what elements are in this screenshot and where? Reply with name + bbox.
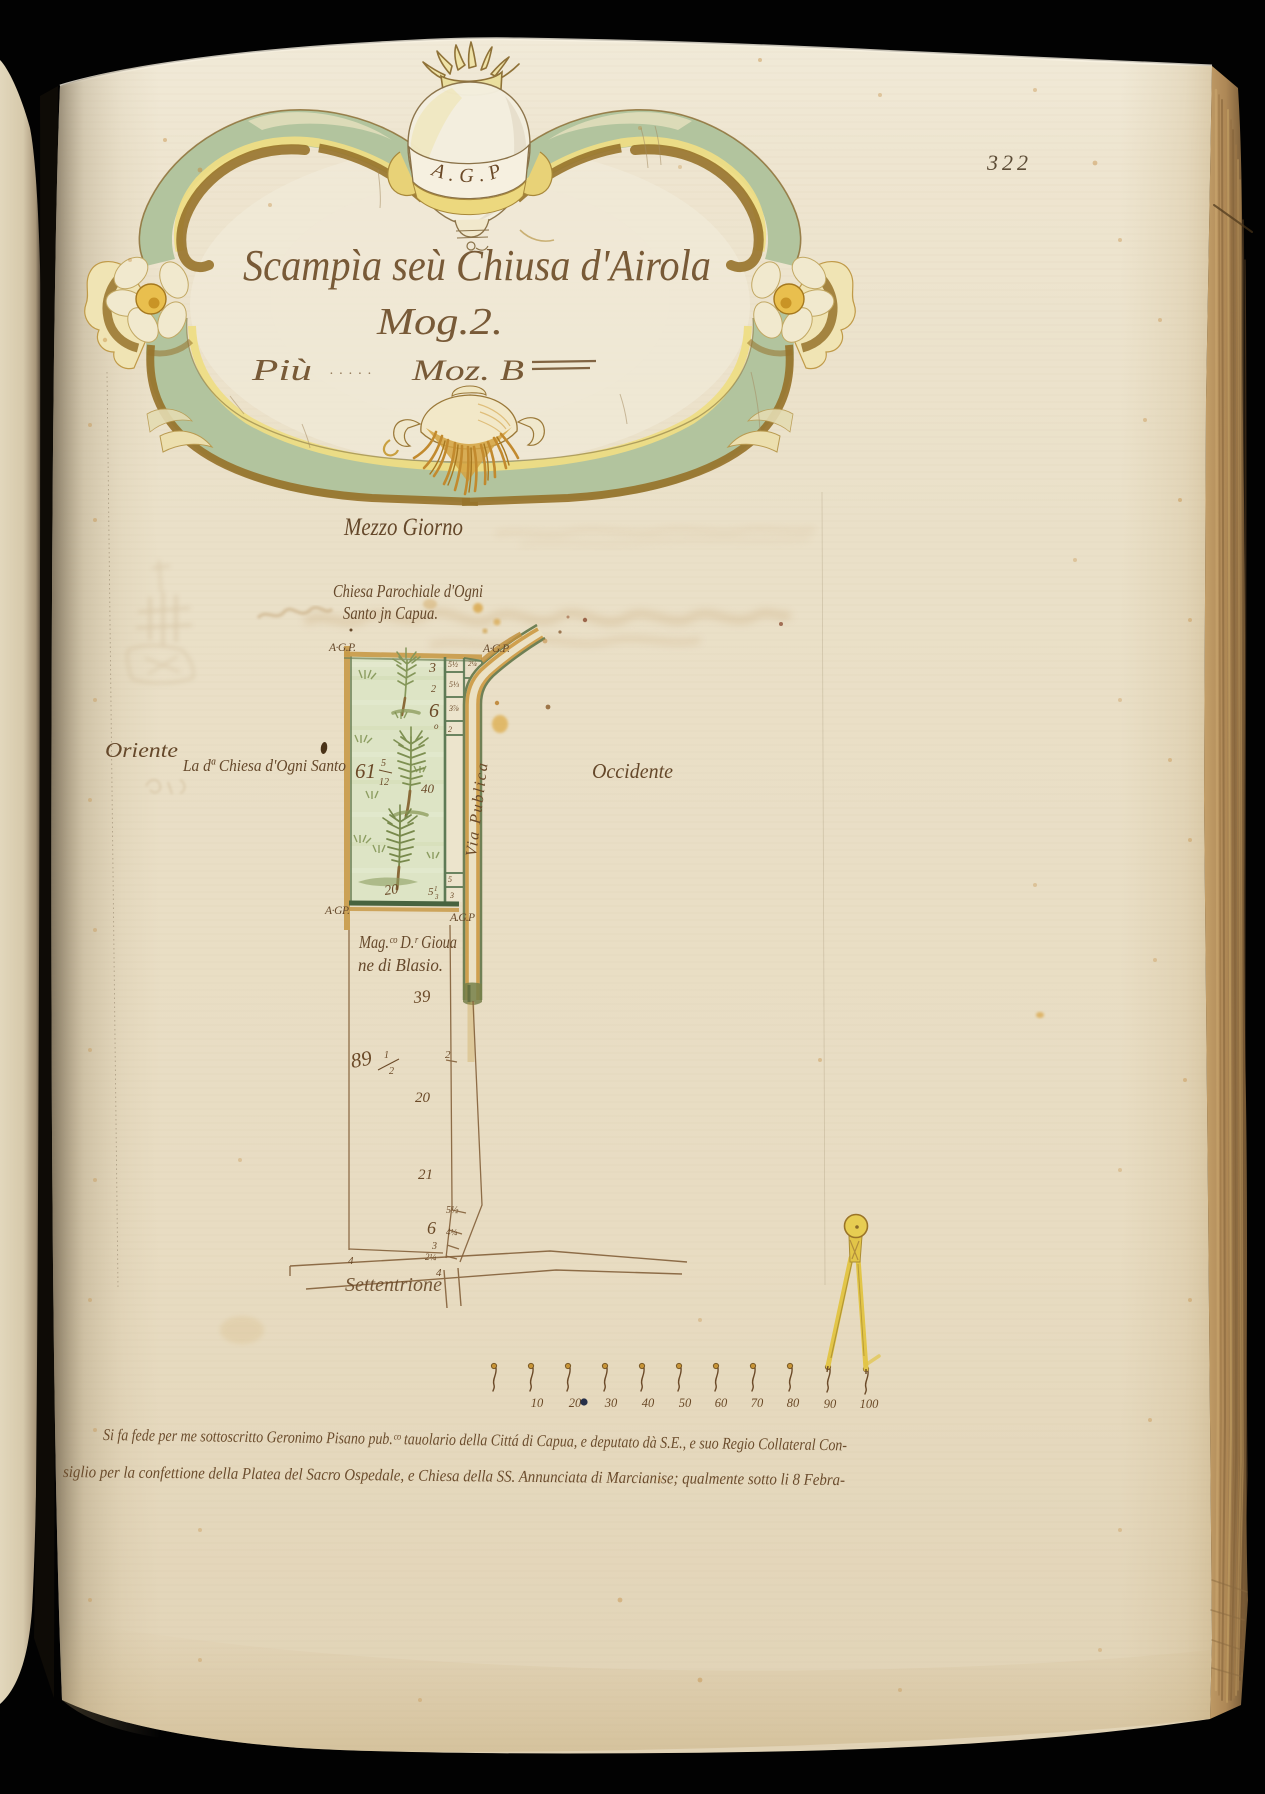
svg-text:39: 39 bbox=[411, 986, 431, 1007]
svg-text:2: 2 bbox=[448, 725, 452, 734]
svg-text:ne di Blasio.: ne di Blasio. bbox=[358, 955, 443, 975]
svg-text:4¼: 4¼ bbox=[446, 1227, 458, 1237]
svg-text:70: 70 bbox=[751, 1396, 764, 1410]
svg-text:3⅞: 3⅞ bbox=[448, 704, 459, 713]
svg-text:20: 20 bbox=[415, 1090, 431, 1106]
svg-text:5½: 5½ bbox=[446, 1205, 459, 1216]
svg-text:322: 322 bbox=[986, 150, 1032, 175]
svg-text:3: 3 bbox=[449, 891, 454, 900]
svg-text:40: 40 bbox=[421, 781, 435, 796]
svg-text:61: 61 bbox=[355, 759, 376, 783]
svg-text:50: 50 bbox=[679, 1396, 692, 1410]
svg-text:3: 3 bbox=[434, 893, 439, 901]
svg-text:5: 5 bbox=[381, 758, 386, 769]
svg-text:90: 90 bbox=[824, 1397, 837, 1411]
svg-text:2: 2 bbox=[431, 684, 436, 695]
svg-text:Più: Più bbox=[251, 352, 312, 387]
svg-text:21: 21 bbox=[418, 1167, 433, 1183]
svg-text:2: 2 bbox=[389, 1066, 394, 1077]
svg-text:Mag.ᶜᵒ D.ʳ Gioua: Mag.ᶜᵒ D.ʳ Gioua bbox=[358, 932, 457, 952]
svg-text:40: 40 bbox=[642, 1396, 655, 1410]
svg-text:1: 1 bbox=[384, 1050, 389, 1061]
svg-text:100: 100 bbox=[860, 1397, 880, 1411]
svg-text:20: 20 bbox=[383, 882, 399, 899]
svg-text:Occidente: Occidente bbox=[592, 759, 673, 783]
svg-text:Chiesa Parochiale d'Ogni: Chiesa Parochiale d'Ogni bbox=[333, 581, 483, 601]
svg-text:2: 2 bbox=[445, 1049, 451, 1061]
svg-text:6: 6 bbox=[429, 700, 439, 722]
svg-text:Scampìa seù Chiusa d'Airola: Scampìa seù Chiusa d'Airola bbox=[243, 241, 711, 290]
svg-text:Settentrione: Settentrione bbox=[345, 1275, 442, 1296]
svg-text:5⅓: 5⅓ bbox=[449, 680, 459, 689]
svg-text:A·GP.: A·GP. bbox=[324, 905, 350, 917]
svg-text:60: 60 bbox=[715, 1396, 728, 1410]
svg-text:Mezzo Giorno: Mezzo Giorno bbox=[343, 514, 463, 541]
svg-text:2¼: 2¼ bbox=[425, 1252, 437, 1262]
svg-text:Oriente: Oriente bbox=[105, 738, 178, 762]
svg-text:A·G.P.: A·G.P. bbox=[328, 642, 356, 654]
svg-text:1: 1 bbox=[434, 885, 438, 893]
svg-text:5: 5 bbox=[448, 875, 452, 884]
svg-text:3: 3 bbox=[431, 1241, 437, 1252]
svg-text:2¼: 2¼ bbox=[468, 660, 478, 668]
svg-text:A·G.P.: A·G.P. bbox=[482, 643, 510, 655]
svg-text:La dª Chiesa d'Ogni Santo: La dª Chiesa d'Ogni Santo bbox=[182, 756, 346, 775]
svg-text:10: 10 bbox=[531, 1396, 544, 1410]
svg-text:30: 30 bbox=[604, 1396, 618, 1410]
svg-text:6: 6 bbox=[427, 1218, 436, 1238]
svg-text:4: 4 bbox=[348, 1255, 354, 1267]
svg-text:3: 3 bbox=[428, 661, 436, 676]
svg-text:Moz. B: Moz. B bbox=[411, 354, 524, 387]
svg-text:A.G.P: A.G.P bbox=[449, 912, 475, 924]
svg-text:12: 12 bbox=[379, 777, 389, 788]
svg-text:.....: ..... bbox=[330, 363, 378, 378]
svg-text:Mog.2.: Mog.2. bbox=[376, 301, 503, 343]
svg-text:80: 80 bbox=[787, 1396, 800, 1410]
svg-text:5½: 5½ bbox=[448, 660, 458, 669]
svg-text:o: o bbox=[434, 721, 439, 731]
svg-text:20: 20 bbox=[569, 1396, 582, 1410]
